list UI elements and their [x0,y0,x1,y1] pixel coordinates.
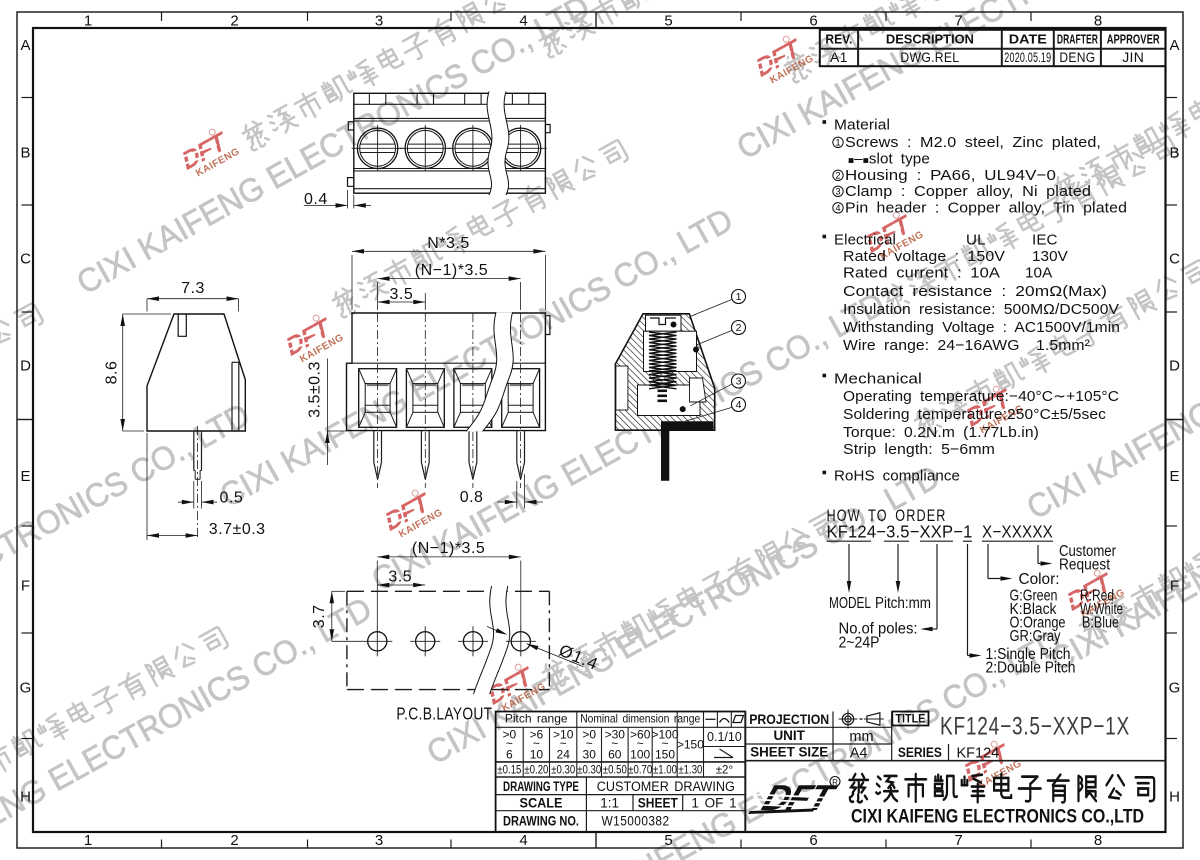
svg-text:8: 8 [1094,832,1102,849]
svg-text:3.7: 3.7 [311,604,328,628]
svg-text:Request: Request [1059,557,1111,574]
svg-text:2: 2 [736,322,742,334]
svg-text:6: 6 [809,832,817,849]
svg-text:0.1/10: 0.1/10 [707,730,742,744]
svg-text:2: 2 [230,832,238,849]
svg-text:A4: A4 [850,745,868,761]
svg-text:3: 3 [375,832,383,849]
svg-text:1 OF 1: 1 OF 1 [691,796,736,811]
svg-text:±1.30: ±1.30 [678,765,702,777]
svg-text:CIXI KAIFENG ELECTRONICS CO.,L: CIXI KAIFENG ELECTRONICS CO.,LTD [851,806,1144,828]
svg-text:5: 5 [664,12,672,29]
svg-text:W15000382: W15000382 [602,814,670,829]
svg-text:Operating temperature:−40°C∼+1: Operating temperature:−40°C∼+105°C [843,388,1119,405]
svg-text:±0.30: ±0.30 [551,765,575,777]
svg-text:UL: UL [966,231,986,248]
svg-text:0.8: 0.8 [460,489,484,506]
svg-text:■–■slot type: ■–■slot type [848,150,930,167]
svg-text:4: 4 [736,399,742,411]
svg-text:8: 8 [1094,12,1102,29]
svg-text:Nominal dimension range: Nominal dimension range [580,712,700,726]
svg-text:30: 30 [583,748,597,762]
svg-text:0.5: 0.5 [220,490,244,507]
svg-text:1: 1 [84,12,92,29]
svg-text:3: 3 [835,187,840,197]
svg-text:2020.05.19: 2020.05.19 [1004,49,1051,65]
svg-text:3.5: 3.5 [388,569,412,586]
svg-text:G: G [20,680,32,697]
svg-text:8.6: 8.6 [104,361,121,385]
svg-text:H: H [1169,789,1180,806]
svg-text:Rated current : 10A: Rated current : 10A [843,264,1001,281]
svg-text:±0.70: ±0.70 [628,765,652,777]
svg-text:KF124: KF124 [957,746,1000,762]
svg-text:D: D [1169,358,1180,375]
svg-text:10: 10 [530,748,544,762]
svg-text:4: 4 [835,203,840,213]
svg-text:Clamp : Copper alloy, Ni plate: Clamp : Copper alloy, Ni plated [845,183,1091,200]
svg-text:150: 150 [655,748,675,762]
svg-text:R: R [832,778,838,787]
svg-text:Electrical: Electrical [834,231,896,248]
svg-text:DRAFTER: DRAFTER [1057,32,1098,46]
svg-text:C: C [1169,251,1180,268]
svg-text:(N−1)*3.5: (N−1)*3.5 [412,540,485,557]
svg-text:4: 4 [519,832,527,849]
svg-text:A1: A1 [830,49,848,65]
svg-text:SERIES: SERIES [898,745,942,760]
svg-text:C: C [20,251,31,268]
svg-text:24: 24 [557,748,571,762]
svg-text:>150: >150 [677,738,704,752]
svg-text:±0.50: ±0.50 [603,765,627,777]
svg-text:PROJECTION: PROJECTION [749,712,829,727]
svg-text:JIN: JIN [1122,49,1144,65]
svg-text:B:Blue: B:Blue [1082,615,1119,632]
svg-text:60: 60 [608,748,622,762]
svg-text:0.4: 0.4 [304,191,328,208]
svg-text:Color:: Color: [1019,571,1060,588]
svg-text:Insulation resistance: 500MΩ/D: Insulation resistance: 500MΩ/DC500V [843,301,1120,318]
svg-text:2~24P: 2~24P [839,635,880,652]
svg-text:REV.: REV. [825,32,852,46]
svg-text:2:Double Pitch: 2:Double Pitch [986,660,1076,677]
svg-text:Rated voltage : 150V: Rated voltage : 150V [843,248,1006,265]
svg-text:KF124−3.5−XXP−1: KF124−3.5−XXP−1 [827,522,973,542]
svg-text:E: E [1169,468,1179,485]
svg-text:±1.00: ±1.00 [653,765,677,777]
svg-text:E: E [20,468,30,485]
svg-text:SCALE: SCALE [520,796,563,811]
svg-text:1:1: 1:1 [600,796,619,811]
svg-text:3: 3 [736,376,742,388]
svg-text:±0.30: ±0.30 [577,765,601,777]
svg-text:APPROVER: APPROVER [1107,32,1160,46]
svg-text:2: 2 [835,171,840,181]
svg-text:10A: 10A [1025,264,1053,281]
svg-text:A: A [1169,37,1179,54]
svg-text:F: F [1170,578,1179,595]
svg-text:X−XXXXX: X−XXXXX [982,522,1053,542]
svg-text:Screws : M2.0 steel, Zinc plat: Screws : M2.0 steel, Zinc plated, [845,134,1101,151]
svg-text:3: 3 [375,12,383,29]
svg-text:100: 100 [630,748,650,762]
svg-text:mm: mm [849,729,873,745]
svg-text:130V: 130V [1032,248,1069,265]
svg-text:Material: Material [834,116,890,133]
svg-text:SHEET SIZE: SHEET SIZE [750,745,828,760]
svg-text:DATE: DATE [1009,32,1047,46]
svg-text:Housing : PA66, UL94V−0: Housing : PA66, UL94V−0 [845,167,1056,184]
svg-text:N*3.5: N*3.5 [427,235,470,252]
svg-text:3.5±0.3: 3.5±0.3 [307,361,324,418]
svg-text:3.7±0.3: 3.7±0.3 [209,521,266,538]
svg-text:6: 6 [506,748,513,762]
svg-text:Strip length: 5−6mm: Strip length: 5−6mm [843,441,995,458]
svg-text:CUSTOMER DRAWING: CUSTOMER DRAWING [597,779,735,794]
svg-text:±0.15: ±0.15 [497,765,521,777]
svg-text:±0.20: ±0.20 [524,765,548,777]
svg-text:Wire range: 24−16AWG 1.5mm²: Wire range: 24−16AWG 1.5mm² [843,337,1090,354]
svg-text:H: H [20,789,31,806]
svg-text:F: F [21,578,30,595]
svg-text:Withstanding Voltage : AC1500V: Withstanding Voltage : AC1500V/1min [843,319,1120,336]
svg-text:UNIT: UNIT [773,728,805,743]
svg-text:SHEET: SHEET [638,796,679,811]
svg-text:7.3: 7.3 [181,280,205,297]
svg-text:A: A [20,37,30,54]
svg-text:4: 4 [519,12,527,29]
svg-text:1: 1 [736,291,742,303]
svg-text:P.C.B.LAYOUT: P.C.B.LAYOUT [396,704,492,724]
svg-text:B: B [1169,145,1179,162]
svg-text:DENG: DENG [1059,49,1095,65]
svg-text:5: 5 [664,832,672,849]
svg-text:DRAWING TYPE: DRAWING TYPE [503,779,579,794]
svg-text:GR:Gray: GR:Gray [1010,628,1061,645]
svg-text:B: B [20,145,30,162]
svg-text:DRAWING NO.: DRAWING NO. [503,814,579,829]
svg-text:KF124−3.5−XXP−1X: KF124−3.5−XXP−1X [940,713,1130,741]
svg-text:IEC: IEC [1032,231,1058,248]
svg-text:1: 1 [835,138,840,148]
svg-text:±2°: ±2° [716,765,733,777]
svg-text:2: 2 [230,12,238,29]
svg-text:3.5: 3.5 [390,286,414,303]
svg-text:RoHS compliance: RoHS compliance [834,467,960,484]
svg-text:Soldering temperature:250°C±5/: Soldering temperature:250°C±5/5sec [843,406,1106,423]
svg-text:G: G [1169,680,1181,697]
svg-text:7: 7 [954,12,962,29]
svg-text:DWG.REL: DWG.REL [900,49,959,65]
svg-text:Pitch range: Pitch range [505,712,568,726]
svg-text:1: 1 [84,832,92,849]
svg-text:TITLE: TITLE [895,711,925,725]
svg-text:Pin header : Copper alloy, Tin: Pin header : Copper alloy, Tin plated [845,199,1127,216]
svg-text:Mechanical: Mechanical [834,370,922,387]
svg-text:Pitch:mm: Pitch:mm [875,595,931,612]
svg-text:(N−1)*3.5: (N−1)*3.5 [415,262,488,279]
svg-text:7: 7 [954,832,962,849]
svg-text:DESCRIPTION: DESCRIPTION [886,32,974,46]
svg-text:MODEL: MODEL [829,595,871,612]
svg-text:Contact resistance : 20mΩ(Max): Contact resistance : 20mΩ(Max) [843,283,1107,300]
svg-text:D: D [20,358,31,375]
svg-text:6: 6 [809,12,817,29]
svg-text:Torque: 0.2N.m (1.77Lb.in): Torque: 0.2N.m (1.77Lb.in) [843,424,1039,441]
